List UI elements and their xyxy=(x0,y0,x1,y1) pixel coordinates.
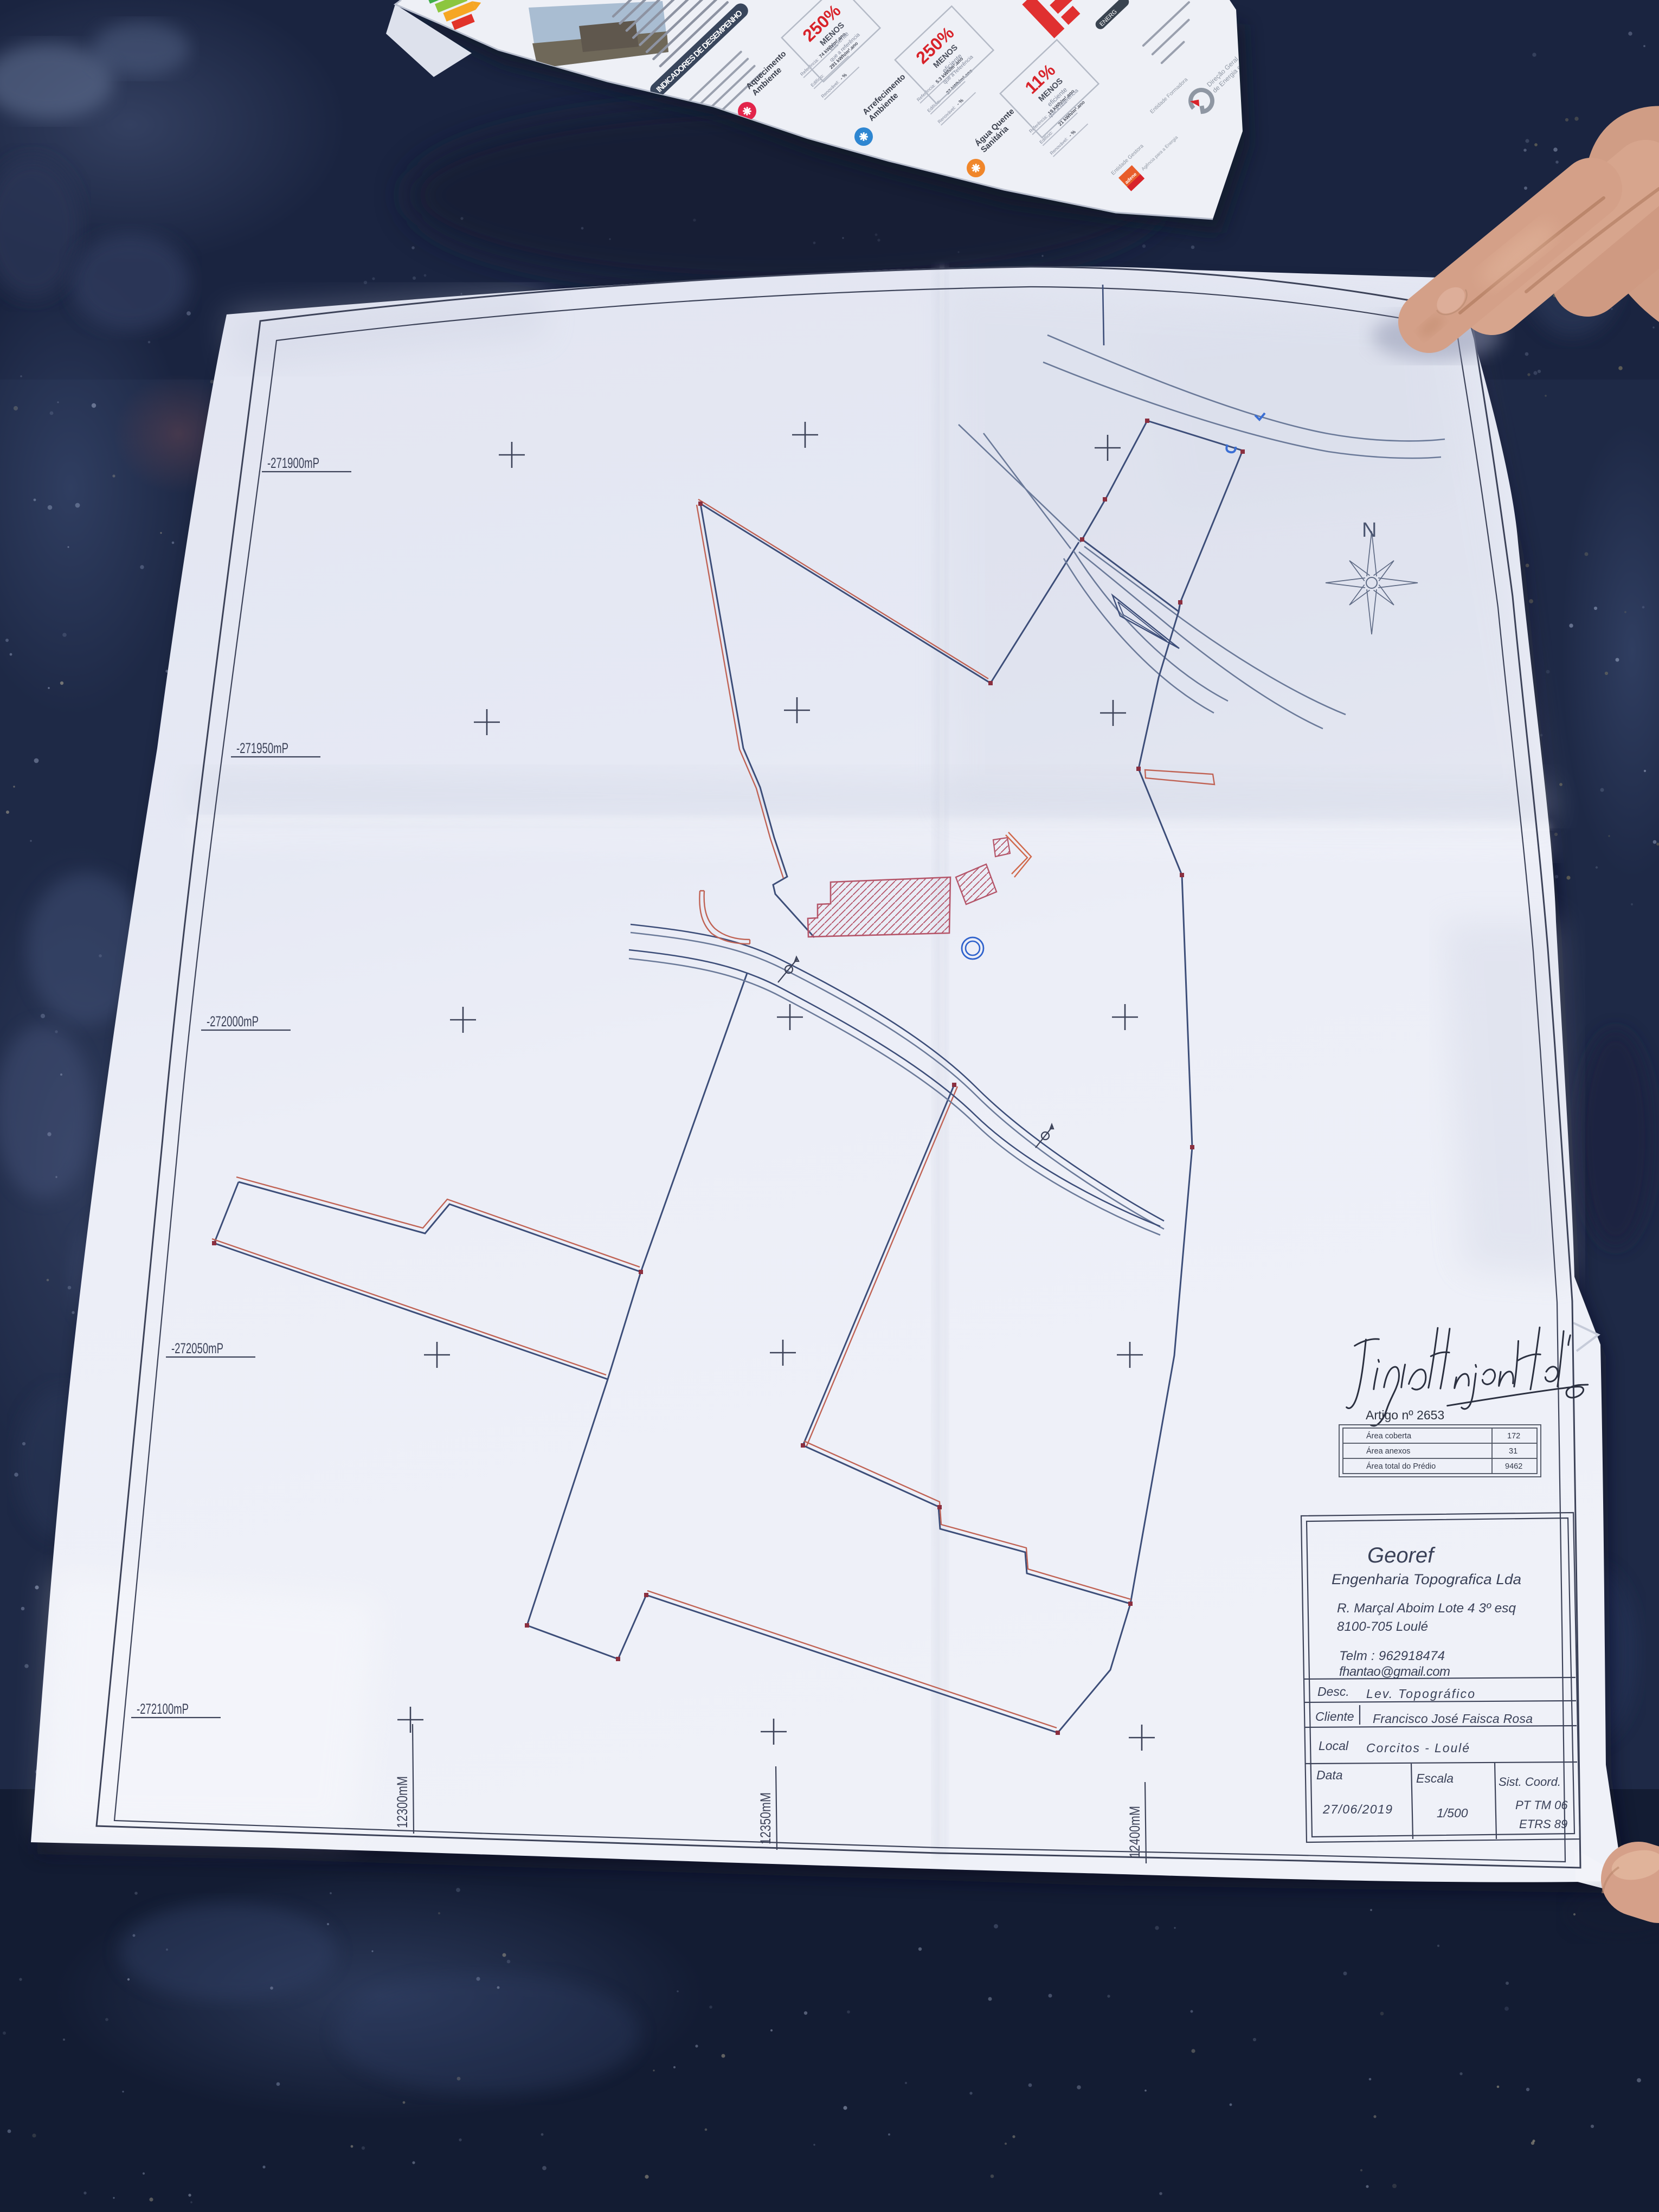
svg-text:Lev. Topográfico: Lev. Topográfico xyxy=(1366,1687,1475,1701)
svg-text:Área coberta: Área coberta xyxy=(1366,1431,1412,1441)
svg-text:9462: 9462 xyxy=(1505,1462,1522,1471)
svg-text:-271900mP: -271900mP xyxy=(267,455,319,471)
svg-text:1/500: 1/500 xyxy=(1437,1806,1468,1820)
svg-text:-272050mP: -272050mP xyxy=(171,1340,223,1356)
svg-text:Artigo nº 2653: Artigo nº 2653 xyxy=(1366,1408,1444,1422)
svg-text:-272100mP: -272100mP xyxy=(137,1701,189,1717)
svg-text:Cliente: Cliente xyxy=(1315,1709,1354,1724)
svg-text:Engenharia Topografica Lda: Engenharia Topografica Lda xyxy=(1332,1571,1521,1587)
svg-text:ETRS 89: ETRS 89 xyxy=(1519,1817,1567,1831)
svg-text:Desc.: Desc. xyxy=(1317,1684,1349,1699)
svg-text:31: 31 xyxy=(1509,1447,1517,1456)
svg-text:PT TM 06: PT TM 06 xyxy=(1515,1798,1568,1812)
svg-text:Escala: Escala xyxy=(1416,1771,1454,1785)
svg-text:fhantao@gmail.com: fhantao@gmail.com xyxy=(1339,1664,1450,1679)
svg-text:12400mM: 12400mM xyxy=(1127,1806,1143,1858)
svg-text:R. Marçal Aboim Lote 4 3º esq: R. Marçal Aboim Lote 4 3º esq xyxy=(1337,1601,1516,1616)
svg-text:-272000mP: -272000mP xyxy=(207,1013,259,1030)
svg-text:-271950mP: -271950mP xyxy=(236,740,288,756)
svg-text:172: 172 xyxy=(1507,1432,1520,1441)
svg-text:Corcitos - Loulé: Corcitos - Loulé xyxy=(1366,1741,1469,1755)
svg-text:12300mM: 12300mM xyxy=(394,1776,410,1828)
svg-text:Telm : 962918474: Telm : 962918474 xyxy=(1339,1649,1445,1663)
svg-text:Área total do Prédio: Área total do Prédio xyxy=(1366,1462,1436,1471)
svg-text:12350mM: 12350mM xyxy=(757,1792,774,1844)
svg-text:Data: Data xyxy=(1316,1768,1343,1782)
svg-text:Francisco José Faisca Rosa: Francisco José Faisca Rosa xyxy=(1373,1712,1533,1726)
svg-text:Georef: Georef xyxy=(1367,1544,1436,1567)
svg-text:8100-705 Loulé: 8100-705 Loulé xyxy=(1337,1619,1428,1634)
svg-text:Sist. Coord.: Sist. Coord. xyxy=(1499,1775,1561,1789)
svg-text:N: N xyxy=(1362,519,1377,542)
svg-text:Área anexos: Área anexos xyxy=(1366,1446,1410,1456)
svg-text:Local: Local xyxy=(1319,1739,1349,1753)
